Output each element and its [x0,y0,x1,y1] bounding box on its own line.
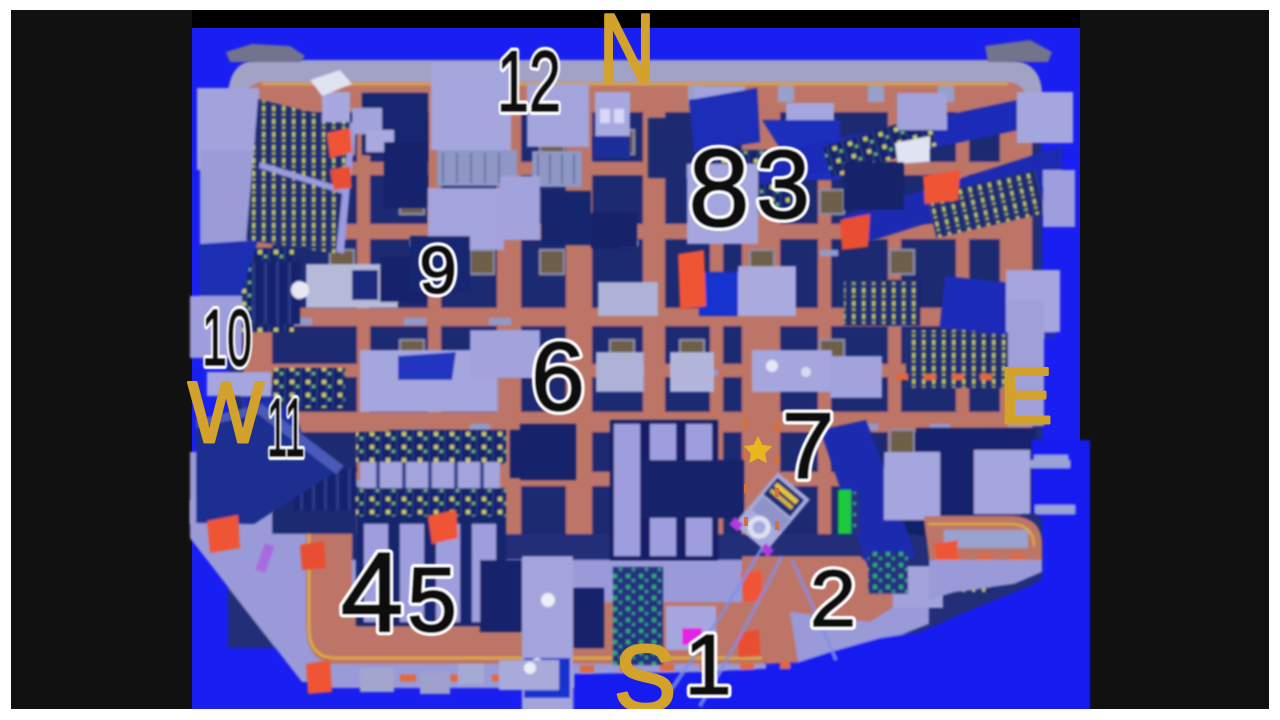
svg-text:9: 9 [419,233,456,308]
svg-text:E: E [1000,351,1053,440]
svg-text:N: N [599,0,655,103]
svg-text:S: S [614,626,676,720]
svg-text:10: 10 [202,293,252,382]
svg-text:3: 3 [756,130,810,239]
svg-text:7: 7 [782,393,834,498]
svg-text:5: 5 [407,549,457,651]
svg-text:1: 1 [684,618,731,713]
svg-text:12: 12 [497,34,561,130]
svg-text:11: 11 [267,381,305,474]
svg-text:2: 2 [810,554,856,643]
svg-text:4: 4 [341,529,404,655]
svg-text:6: 6 [531,322,585,431]
svg-text:8: 8 [688,127,749,250]
